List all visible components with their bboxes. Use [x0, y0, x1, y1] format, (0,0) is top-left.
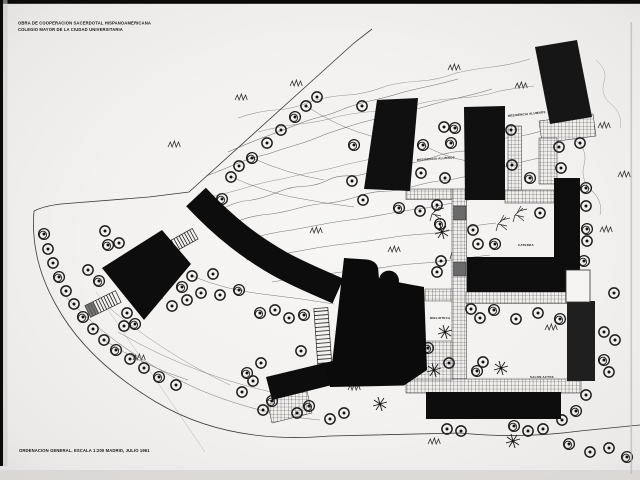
svg-text:SALON ACTOS: SALON ACTOS: [530, 375, 554, 379]
svg-text:ORDENACION GENERAL. ESCALA: ORDENACION GENERAL. ESCALA 1:200 MADRID,…: [19, 448, 150, 453]
svg-text:COLEGIO MAYOR DE LA CIUDAD UNI: COLEGIO MAYOR DE LA CIUDAD UNIVERSITARIA: [18, 27, 123, 32]
svg-text:BIBLIOTECA: BIBLIOTECA: [430, 316, 451, 320]
svg-text:OBRA DE COOPERACION SACERDOTAL: OBRA DE COOPERACION SACERDOTAL HISPANOAM…: [18, 20, 151, 25]
svg-text:CATEDRA: CATEDRA: [518, 243, 534, 247]
